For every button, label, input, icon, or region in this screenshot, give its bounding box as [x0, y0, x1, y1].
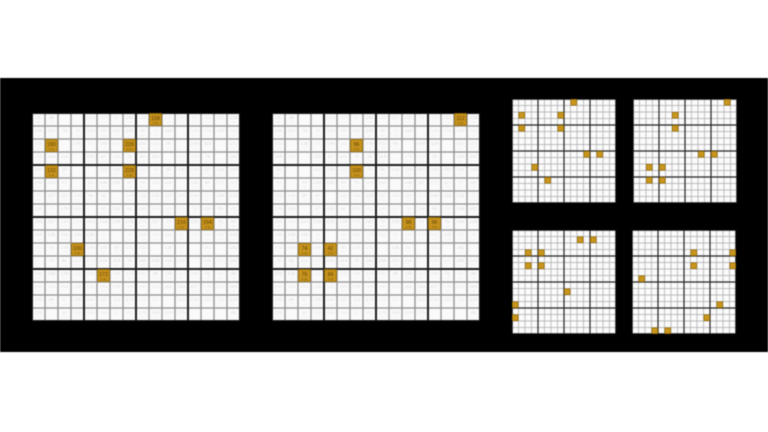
svg-text:620: 620	[315, 198, 320, 202]
svg-text:840: 840	[315, 237, 320, 241]
svg-text:620: 620	[205, 289, 210, 293]
svg-text:3.2k: 3.2k	[471, 276, 477, 280]
svg-text:250: 250	[203, 297, 211, 302]
svg-text:211: 211	[164, 232, 172, 237]
svg-text:840: 840	[354, 224, 359, 228]
svg-text:192: 192	[73, 271, 81, 276]
svg-text:1.1k: 1.1k	[191, 146, 197, 150]
svg-text:1.1k: 1.1k	[217, 120, 223, 124]
svg-text:3.2k: 3.2k	[354, 302, 360, 306]
svg-text:148: 148	[379, 115, 387, 120]
svg-text:4.2k: 4.2k	[432, 225, 438, 229]
svg-text:1.1k: 1.1k	[341, 120, 347, 124]
svg-text:900: 900	[406, 250, 411, 254]
svg-text:840: 840	[114, 276, 119, 280]
svg-text:900: 900	[302, 185, 307, 189]
svg-text:840: 840	[315, 263, 320, 267]
svg-text:3.2k: 3.2k	[276, 237, 282, 241]
svg-text:1.1k: 1.1k	[354, 263, 360, 267]
svg-text:3.2k: 3.2k	[315, 185, 321, 189]
svg-text:840: 840	[179, 211, 184, 215]
svg-text:176: 176	[444, 128, 452, 133]
svg-text:900: 900	[75, 198, 80, 202]
svg-text:146: 146	[340, 310, 348, 315]
svg-text:3.2k: 3.2k	[354, 237, 360, 241]
svg-text:3.2k: 3.2k	[230, 146, 236, 150]
svg-text:620: 620	[419, 224, 424, 228]
svg-text:2.4k: 2.4k	[445, 276, 451, 280]
svg-text:840: 840	[140, 224, 145, 228]
svg-text:2.4k: 2.4k	[152, 172, 158, 176]
svg-text:3.2k: 3.2k	[152, 133, 158, 137]
svg-text:840: 840	[406, 315, 411, 319]
svg-text:1.1k: 1.1k	[100, 159, 106, 163]
svg-text:3.2k: 3.2k	[230, 263, 236, 267]
svg-text:157: 157	[47, 219, 55, 224]
svg-text:148: 148	[138, 115, 146, 120]
svg-text:840: 840	[367, 198, 372, 202]
svg-text:4.2k: 4.2k	[406, 225, 412, 229]
svg-text:219: 219	[314, 219, 322, 224]
svg-text:3.2k: 3.2k	[87, 133, 93, 137]
svg-text:900: 900	[179, 315, 184, 319]
svg-text:620: 620	[218, 302, 223, 306]
svg-text:236: 236	[327, 180, 335, 185]
svg-text:1.1k: 1.1k	[367, 289, 373, 293]
svg-text:900: 900	[192, 133, 197, 137]
svg-text:1.1k: 1.1k	[328, 302, 334, 306]
svg-text:209: 209	[86, 271, 94, 276]
svg-text:3.2k: 3.2k	[61, 211, 67, 215]
svg-text:151: 151	[177, 297, 185, 302]
svg-text:4.2k: 4.2k	[48, 173, 54, 177]
svg-text:2.4k: 2.4k	[35, 146, 41, 150]
svg-text:2.4k: 2.4k	[178, 172, 184, 176]
svg-text:1.1k: 1.1k	[35, 133, 41, 137]
svg-text:226: 226	[190, 219, 198, 224]
svg-text:620: 620	[354, 198, 359, 202]
svg-text:840: 840	[114, 172, 119, 176]
svg-text:900: 900	[406, 172, 411, 176]
svg-text:166: 166	[314, 284, 322, 289]
svg-text:4.2k: 4.2k	[328, 277, 334, 281]
svg-text:80: 80	[315, 141, 321, 146]
svg-text:620: 620	[205, 159, 210, 163]
svg-text:216: 216	[327, 258, 335, 263]
svg-text:1.1k: 1.1k	[289, 289, 295, 293]
svg-text:900: 900	[114, 250, 119, 254]
svg-text:189: 189	[470, 167, 478, 172]
svg-text:225: 225	[405, 258, 413, 263]
svg-text:213: 213	[301, 284, 309, 289]
svg-text:74: 74	[302, 128, 308, 133]
svg-text:139: 139	[470, 219, 478, 224]
svg-text:620: 620	[302, 237, 307, 241]
svg-text:159: 159	[34, 219, 42, 224]
svg-text:1.1k: 1.1k	[217, 198, 223, 202]
svg-text:620: 620	[101, 302, 106, 306]
svg-text:73: 73	[48, 258, 54, 263]
svg-text:232: 232	[275, 271, 283, 276]
svg-text:3.2k: 3.2k	[87, 198, 93, 202]
svg-text:620: 620	[276, 198, 281, 202]
svg-text:900: 900	[419, 120, 424, 124]
svg-text:900: 900	[380, 198, 385, 202]
svg-text:83: 83	[61, 180, 67, 185]
svg-text:1.1k: 1.1k	[276, 133, 282, 137]
svg-text:3.2k: 3.2k	[204, 250, 210, 254]
svg-text:900: 900	[88, 250, 93, 254]
svg-text:3.2k: 3.2k	[458, 146, 464, 150]
svg-text:620: 620	[406, 198, 411, 202]
svg-text:840: 840	[380, 302, 385, 306]
svg-text:211: 211	[164, 284, 172, 289]
svg-text:900: 900	[140, 146, 145, 150]
svg-text:3.2k: 3.2k	[152, 263, 158, 267]
svg-text:1.1k: 1.1k	[289, 211, 295, 215]
svg-text:74: 74	[61, 128, 67, 133]
svg-text:840: 840	[393, 237, 398, 241]
svg-text:1.1k: 1.1k	[48, 211, 54, 215]
svg-text:900: 900	[341, 250, 346, 254]
svg-text:163: 163	[86, 219, 94, 224]
svg-text:1.1k: 1.1k	[289, 263, 295, 267]
svg-text:2.4k: 2.4k	[165, 250, 171, 254]
svg-text:900: 900	[192, 237, 197, 241]
svg-text:3.2k: 3.2k	[393, 133, 399, 137]
svg-text:2.4k: 2.4k	[302, 315, 308, 319]
svg-text:1.1k: 1.1k	[354, 120, 360, 124]
svg-text:900: 900	[166, 211, 171, 215]
svg-text:3.2k: 3.2k	[354, 133, 360, 137]
svg-text:620: 620	[471, 289, 476, 293]
svg-text:620: 620	[62, 276, 67, 280]
svg-text:1.1k: 1.1k	[315, 133, 321, 137]
svg-text:840: 840	[140, 263, 145, 267]
svg-text:840: 840	[458, 172, 463, 176]
svg-text:900: 900	[218, 211, 223, 215]
svg-text:2.4k: 2.4k	[165, 276, 171, 280]
svg-text:900: 900	[179, 276, 184, 280]
svg-text:250: 250	[444, 297, 452, 302]
svg-text:620: 620	[276, 172, 281, 176]
svg-text:840: 840	[328, 172, 333, 176]
svg-text:840: 840	[341, 289, 346, 293]
svg-text:840: 840	[166, 224, 171, 228]
svg-text:2.4k: 2.4k	[276, 146, 282, 150]
svg-text:620: 620	[205, 172, 210, 176]
svg-text:900: 900	[289, 302, 294, 306]
svg-text:2.4k: 2.4k	[445, 237, 451, 241]
svg-text:620: 620	[231, 224, 236, 228]
svg-text:900: 900	[458, 237, 463, 241]
svg-text:840: 840	[341, 172, 346, 176]
svg-text:620: 620	[75, 263, 80, 267]
svg-text:3.2k: 3.2k	[126, 237, 132, 241]
svg-text:159: 159	[457, 206, 465, 211]
svg-text:620: 620	[231, 159, 236, 163]
svg-text:2.4k: 2.4k	[393, 172, 399, 176]
svg-text:226: 226	[151, 284, 159, 289]
svg-text:3.2k: 3.2k	[178, 289, 184, 293]
svg-text:189: 189	[216, 128, 224, 133]
svg-text:3.2k: 3.2k	[406, 185, 412, 189]
svg-text:2.4k: 2.4k	[445, 185, 451, 189]
svg-text:3.2k: 3.2k	[458, 263, 464, 267]
svg-text:1.1k: 1.1k	[100, 146, 106, 150]
svg-text:1.1k: 1.1k	[126, 289, 132, 293]
svg-text:840: 840	[127, 302, 132, 306]
svg-text:2.4k: 2.4k	[432, 172, 438, 176]
svg-text:620: 620	[458, 276, 463, 280]
svg-text:1.1k: 1.1k	[315, 315, 321, 319]
svg-text:840: 840	[367, 263, 372, 267]
svg-text:620: 620	[127, 198, 132, 202]
svg-text:4.2k: 4.2k	[152, 121, 158, 125]
svg-text:840: 840	[153, 224, 158, 228]
svg-text:2.4k: 2.4k	[289, 224, 295, 228]
svg-text:176: 176	[112, 284, 120, 289]
svg-text:2.4k: 2.4k	[178, 198, 184, 202]
svg-text:900: 900	[380, 133, 385, 137]
svg-text:1.1k: 1.1k	[48, 159, 54, 163]
svg-text:137: 137	[151, 297, 159, 302]
svg-text:4.2k: 4.2k	[126, 173, 132, 177]
svg-text:146: 146	[99, 310, 107, 315]
svg-text:118: 118	[203, 141, 211, 146]
svg-text:3.2k: 3.2k	[113, 133, 119, 137]
svg-text:204: 204	[99, 167, 107, 172]
svg-text:2.4k: 2.4k	[393, 120, 399, 124]
svg-text:620: 620	[231, 172, 236, 176]
svg-text:3.2k: 3.2k	[61, 237, 67, 241]
svg-text:1.1k: 1.1k	[328, 146, 334, 150]
svg-text:840: 840	[380, 315, 385, 319]
svg-text:1.1k: 1.1k	[74, 211, 80, 215]
svg-text:620: 620	[458, 159, 463, 163]
svg-text:3.2k: 3.2k	[113, 211, 119, 215]
svg-text:1.1k: 1.1k	[61, 263, 67, 267]
svg-text:168: 168	[60, 154, 68, 159]
svg-text:3.2k: 3.2k	[276, 211, 282, 215]
svg-text:102: 102	[86, 310, 94, 315]
svg-text:2.4k: 2.4k	[204, 211, 210, 215]
svg-text:2.4k: 2.4k	[393, 198, 399, 202]
svg-text:2.4k: 2.4k	[328, 120, 334, 124]
svg-text:2.4k: 2.4k	[380, 276, 386, 280]
svg-text:2.4k: 2.4k	[432, 120, 438, 124]
svg-text:4.2k: 4.2k	[178, 225, 184, 229]
svg-text:2.4k: 2.4k	[87, 120, 93, 124]
svg-text:840: 840	[166, 315, 171, 319]
svg-text:900: 900	[88, 185, 93, 189]
svg-text:900: 900	[289, 133, 294, 137]
svg-text:1.1k: 1.1k	[276, 159, 282, 163]
svg-text:177: 177	[431, 180, 439, 185]
svg-text:620: 620	[36, 159, 41, 163]
svg-text:900: 900	[231, 302, 236, 306]
svg-text:3.2k: 3.2k	[393, 276, 399, 280]
svg-text:3.2k: 3.2k	[126, 185, 132, 189]
svg-text:226: 226	[392, 219, 400, 224]
svg-text:1.1k: 1.1k	[113, 159, 119, 163]
svg-text:120: 120	[164, 180, 172, 185]
svg-text:2.4k: 2.4k	[315, 159, 321, 163]
svg-text:2.4k: 2.4k	[35, 315, 41, 319]
svg-text:840: 840	[140, 172, 145, 176]
svg-text:3.2k: 3.2k	[302, 198, 308, 202]
svg-text:1.1k: 1.1k	[458, 224, 464, 228]
svg-text:3.2k: 3.2k	[315, 211, 321, 215]
svg-text:1.1k: 1.1k	[191, 289, 197, 293]
svg-text:1.1k: 1.1k	[139, 250, 145, 254]
svg-text:150: 150	[366, 180, 374, 185]
svg-text:3.2k: 3.2k	[445, 211, 451, 215]
svg-text:1.1k: 1.1k	[419, 237, 425, 241]
svg-text:3.2k: 3.2k	[74, 302, 80, 306]
svg-text:2.4k: 2.4k	[152, 315, 158, 319]
svg-text:840: 840	[36, 289, 41, 293]
svg-text:2.4k: 2.4k	[204, 276, 210, 280]
svg-text:2.4k: 2.4k	[328, 224, 334, 228]
svg-text:620: 620	[101, 133, 106, 137]
svg-text:900: 900	[471, 302, 476, 306]
svg-text:83: 83	[276, 180, 282, 185]
svg-text:620: 620	[192, 198, 197, 202]
svg-text:203: 203	[353, 206, 361, 211]
svg-text:2.4k: 2.4k	[35, 172, 41, 176]
svg-text:3.2k: 3.2k	[61, 224, 67, 228]
svg-text:1.1k: 1.1k	[87, 302, 93, 306]
svg-text:87: 87	[204, 180, 210, 185]
svg-text:840: 840	[471, 185, 476, 189]
svg-text:1.1k: 1.1k	[341, 159, 347, 163]
svg-text:900: 900	[380, 146, 385, 150]
svg-text:4.2k: 4.2k	[302, 251, 308, 255]
svg-text:157: 157	[470, 206, 478, 211]
svg-text:1.1k: 1.1k	[419, 146, 425, 150]
svg-text:136: 136	[86, 284, 94, 289]
svg-text:620: 620	[432, 263, 437, 267]
svg-text:620: 620	[205, 263, 210, 267]
svg-text:168: 168	[288, 154, 296, 159]
svg-text:2.4k: 2.4k	[393, 315, 399, 319]
svg-text:117: 117	[353, 310, 361, 315]
svg-text:2.4k: 2.4k	[367, 159, 373, 163]
svg-text:2.4k: 2.4k	[471, 237, 477, 241]
svg-text:900: 900	[276, 250, 281, 254]
svg-text:840: 840	[153, 198, 158, 202]
svg-text:2.4k: 2.4k	[61, 302, 67, 306]
svg-text:840: 840	[179, 237, 184, 241]
svg-text:620: 620	[205, 198, 210, 202]
svg-text:840: 840	[140, 315, 145, 319]
svg-text:840: 840	[88, 263, 93, 267]
svg-text:3.2k: 3.2k	[191, 185, 197, 189]
svg-text:1.1k: 1.1k	[48, 289, 54, 293]
svg-text:3.2k: 3.2k	[230, 276, 236, 280]
svg-text:218: 218	[444, 193, 452, 198]
svg-text:840: 840	[367, 302, 372, 306]
svg-text:2.4k: 2.4k	[126, 120, 132, 124]
svg-text:177: 177	[216, 180, 224, 185]
svg-text:620: 620	[445, 172, 450, 176]
svg-text:900: 900	[432, 133, 437, 137]
svg-text:225: 225	[177, 258, 185, 263]
svg-text:80: 80	[87, 141, 93, 146]
svg-text:2.4k: 2.4k	[230, 250, 236, 254]
svg-text:840: 840	[101, 250, 106, 254]
svg-text:3.2k: 3.2k	[380, 263, 386, 267]
svg-text:150: 150	[151, 180, 159, 185]
svg-text:4.2k: 4.2k	[48, 147, 54, 151]
svg-text:216: 216	[366, 206, 374, 211]
svg-text:102: 102	[327, 310, 335, 315]
svg-text:2.4k: 2.4k	[74, 224, 80, 228]
svg-text:620: 620	[458, 302, 463, 306]
svg-text:840: 840	[36, 198, 41, 202]
svg-text:118: 118	[431, 141, 439, 146]
svg-text:87: 87	[419, 180, 425, 185]
svg-text:620: 620	[218, 224, 223, 228]
svg-text:840: 840	[36, 302, 41, 306]
svg-text:840: 840	[315, 250, 320, 254]
svg-text:900: 900	[192, 211, 197, 215]
svg-text:620: 620	[471, 146, 476, 150]
svg-text:1.1k: 1.1k	[230, 133, 236, 137]
svg-text:3.2k: 3.2k	[139, 237, 145, 241]
svg-text:840: 840	[458, 185, 463, 189]
svg-text:900: 900	[419, 315, 424, 319]
svg-text:232: 232	[47, 271, 55, 276]
svg-text:840: 840	[101, 237, 106, 241]
svg-text:91: 91	[126, 206, 132, 211]
svg-text:211: 211	[405, 284, 413, 289]
svg-text:840: 840	[367, 237, 372, 241]
svg-text:620: 620	[88, 237, 93, 241]
svg-text:2.4k: 2.4k	[230, 185, 236, 189]
svg-text:1.1k: 1.1k	[471, 198, 477, 202]
svg-text:840: 840	[354, 276, 359, 280]
svg-text:1.1k: 1.1k	[204, 237, 210, 241]
svg-text:1.1k: 1.1k	[432, 289, 438, 293]
svg-text:620: 620	[419, 198, 424, 202]
svg-text:840: 840	[341, 263, 346, 267]
svg-text:2.4k: 2.4k	[458, 250, 464, 254]
svg-text:1.1k: 1.1k	[35, 237, 41, 241]
svg-text:3.2k: 3.2k	[152, 276, 158, 280]
svg-text:1.1k: 1.1k	[126, 263, 132, 267]
svg-text:1.1k: 1.1k	[74, 133, 80, 137]
svg-text:3.2k: 3.2k	[126, 133, 132, 137]
svg-text:139: 139	[47, 232, 55, 237]
svg-text:4.2k: 4.2k	[354, 173, 360, 177]
svg-text:840: 840	[140, 185, 145, 189]
svg-text:4.2k: 4.2k	[74, 251, 80, 255]
svg-text:620: 620	[419, 172, 424, 176]
svg-text:3.2k: 3.2k	[367, 276, 373, 280]
svg-text:1.1k: 1.1k	[302, 146, 308, 150]
svg-text:1.1k: 1.1k	[74, 237, 80, 241]
svg-text:900: 900	[289, 198, 294, 202]
svg-text:840: 840	[276, 289, 281, 293]
svg-text:1.1k: 1.1k	[165, 146, 171, 150]
svg-text:2.4k: 2.4k	[217, 172, 223, 176]
svg-text:130: 130	[353, 245, 361, 250]
svg-text:120: 120	[379, 180, 387, 185]
svg-text:1.1k: 1.1k	[100, 120, 106, 124]
svg-text:3.2k: 3.2k	[341, 237, 347, 241]
